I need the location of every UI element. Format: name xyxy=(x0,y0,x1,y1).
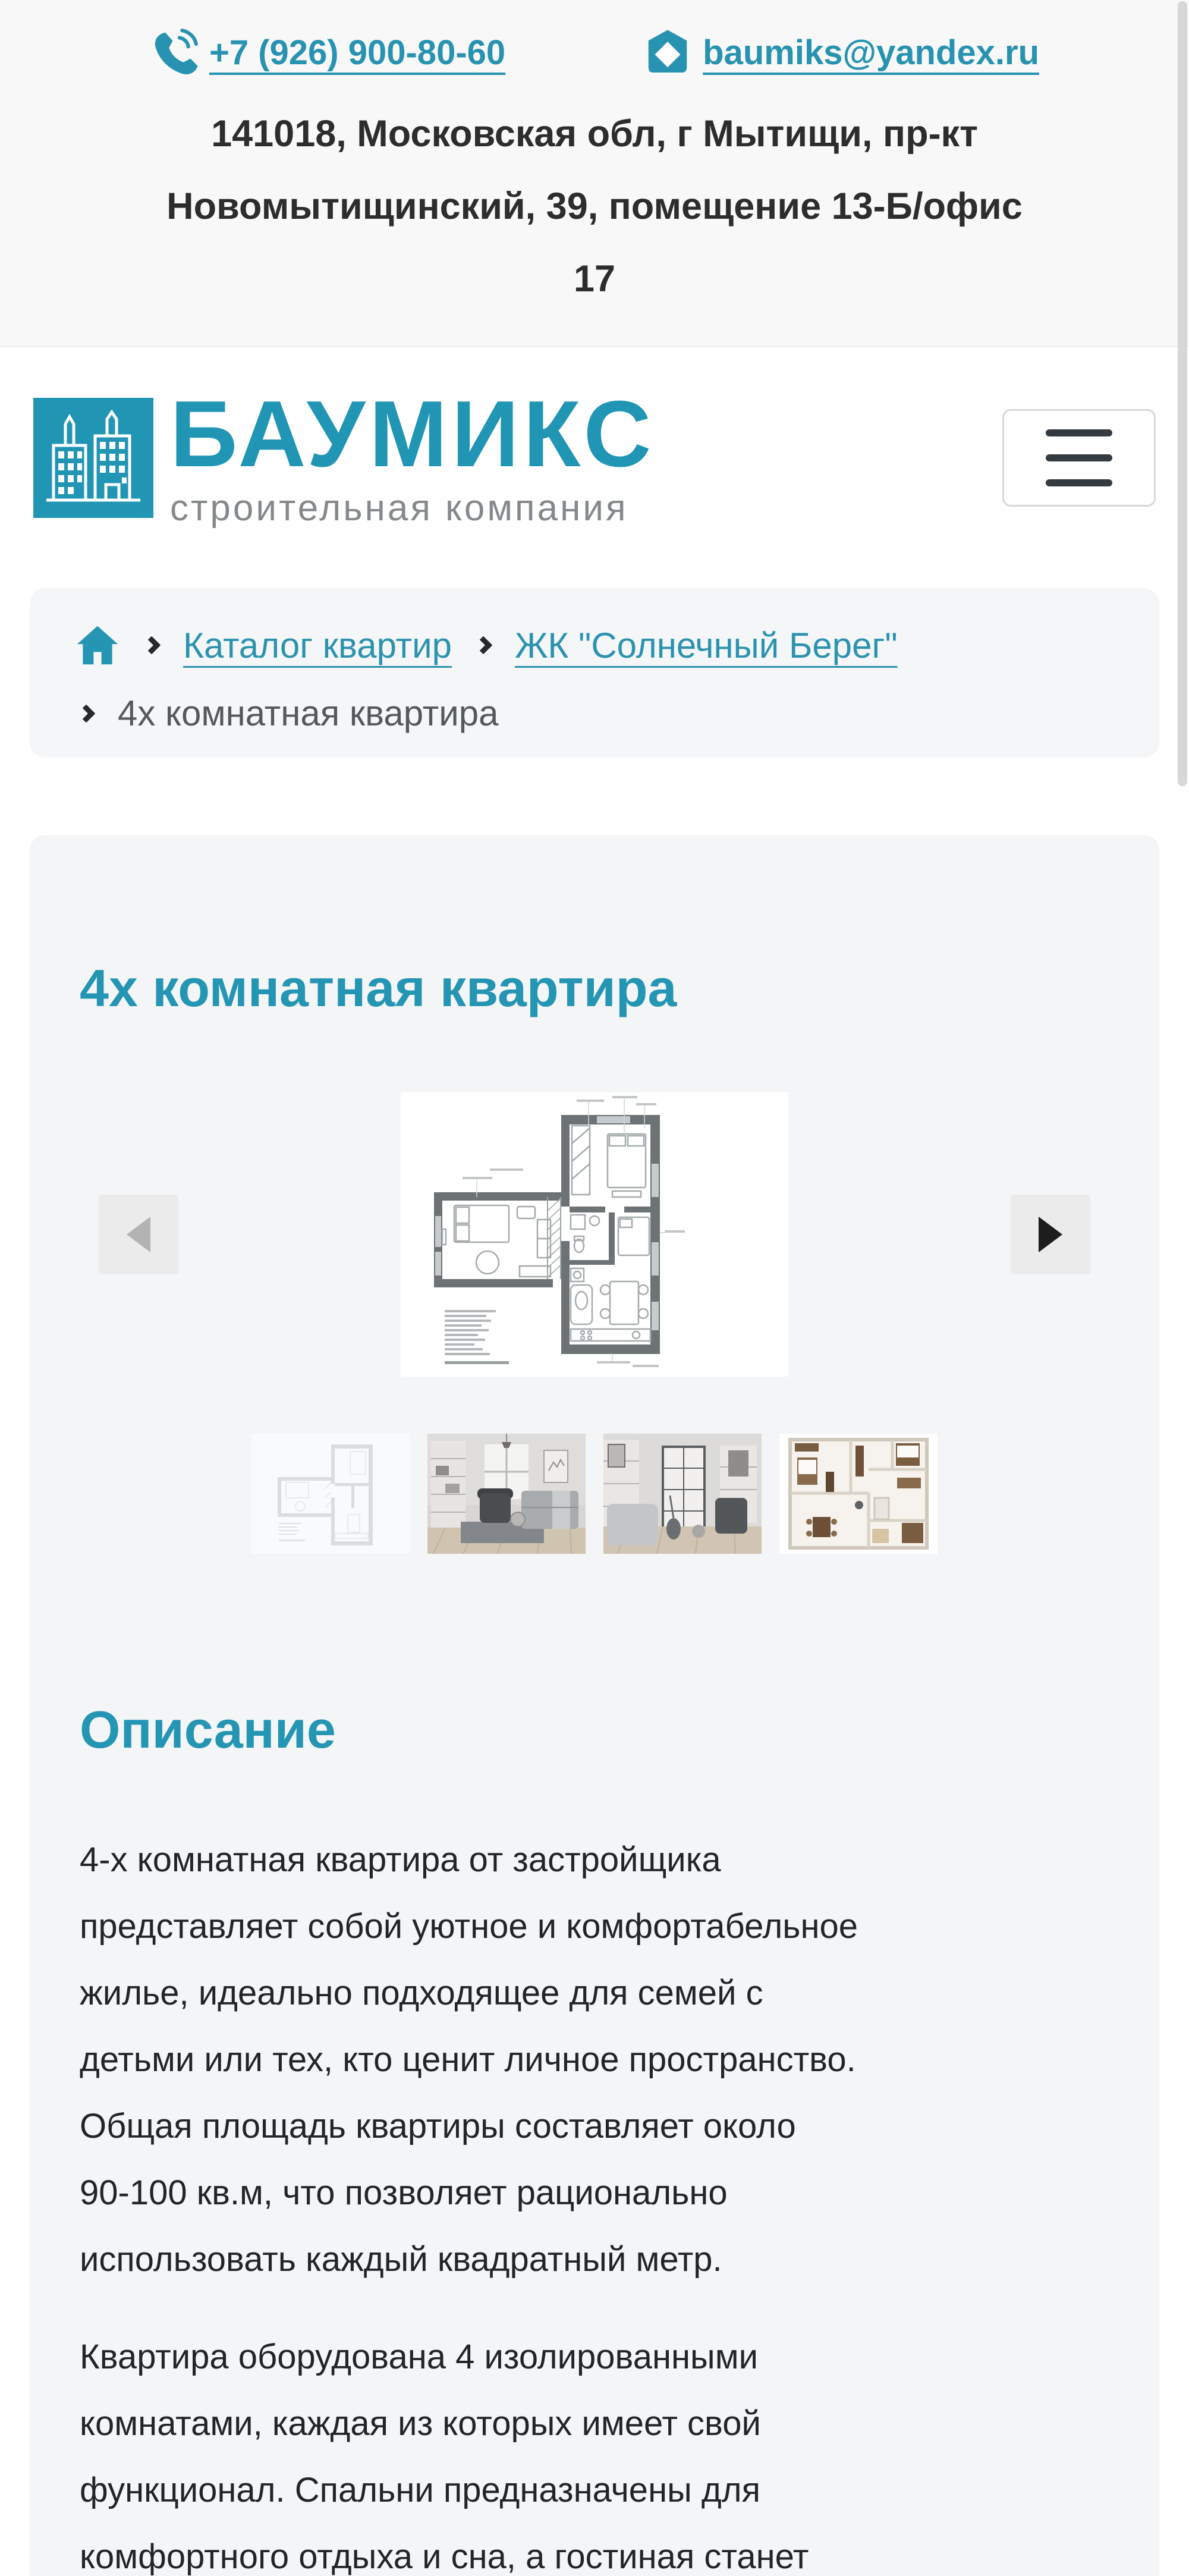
thumbnail-floor-plan-2d[interactable] xyxy=(251,1434,410,1554)
thumbnail-interior-glass-doors[interactable] xyxy=(603,1434,762,1554)
description-paragraph-2: Квартира оборудована 4 изолированными ко… xyxy=(80,2324,1109,2576)
floor-plan-image xyxy=(401,1092,788,1377)
interior-living-room-image xyxy=(427,1434,586,1554)
thumbnail-floor-plan-3d[interactable] xyxy=(779,1434,938,1554)
breadcrumb-row-2: 4х комнатная квартира xyxy=(75,693,1114,734)
email-link[interactable]: baumiks@yandex.ru xyxy=(703,33,1039,73)
breadcrumb-current: 4х комнатная квартира xyxy=(118,693,499,734)
breadcrumb-link-complex[interactable]: ЖК "Солнечный Берег" xyxy=(515,625,898,666)
page-title: 4х комнатная квартира xyxy=(80,960,1109,1017)
breadcrumb-row-1: Каталог квартир ЖК "Солнечный Берег" xyxy=(75,624,1114,667)
carousel-slide-floor-plan xyxy=(401,1092,788,1377)
top-contact-bar: +7 (926) 900-80-60 baumiks@yandex.ru 141… xyxy=(0,0,1189,347)
floor-plan-3d-image xyxy=(779,1434,938,1554)
home-icon[interactable] xyxy=(75,624,120,667)
carousel-next-button[interactable] xyxy=(1011,1195,1090,1274)
hamburger-menu-button[interactable] xyxy=(1002,409,1156,507)
email-icon xyxy=(642,27,693,78)
interior-glass-doors-image xyxy=(603,1434,762,1554)
phone-contact: +7 (926) 900-80-60 xyxy=(150,27,505,77)
chevron-right-icon xyxy=(474,636,492,654)
logo-link[interactable]: БАУМИКС строительная компания xyxy=(33,387,656,529)
email-contact: baumiks@yandex.ru xyxy=(642,27,1039,78)
floor-plan-2d-image xyxy=(251,1434,410,1554)
logo-buildings-icon xyxy=(33,398,153,518)
breadcrumb-link-catalog[interactable]: Каталог квартир xyxy=(183,625,452,666)
thumbnail-interior-living-room[interactable] xyxy=(427,1434,586,1554)
hamburger-bar xyxy=(1046,429,1112,436)
contact-row: +7 (926) 900-80-60 baumiks@yandex.ru xyxy=(0,25,1189,80)
arrow-left-icon xyxy=(127,1217,150,1252)
logo-text: БАУМИКС строительная компания xyxy=(170,387,656,529)
image-carousel xyxy=(80,1092,1109,1377)
description-heading: Описание xyxy=(80,1701,1109,1759)
hamburger-bar xyxy=(1046,454,1112,461)
apartment-card: 4х комнатная квартира xyxy=(30,835,1159,2576)
carousel-prev-button[interactable] xyxy=(99,1195,178,1274)
logo-tagline: строительная компания xyxy=(170,487,656,529)
chevron-right-icon xyxy=(142,636,161,654)
scrollbar-thumb[interactable] xyxy=(1178,1,1187,786)
site-header: БАУМИКС строительная компания xyxy=(0,347,1189,568)
logo-name: БАУМИКС xyxy=(170,387,656,481)
description-paragraph-1: 4-х комнатная квартира от застройщика пр… xyxy=(80,1827,1109,2293)
phone-icon xyxy=(150,27,200,77)
arrow-right-icon xyxy=(1039,1217,1062,1252)
chevron-right-icon xyxy=(77,704,95,722)
company-address: 141018, Московская обл, г Мытищи, пр-кт … xyxy=(0,98,1189,315)
hamburger-bar xyxy=(1046,479,1112,486)
breadcrumb: Каталог квартир ЖК "Солнечный Берег" 4х … xyxy=(30,588,1159,758)
phone-link[interactable]: +7 (926) 900-80-60 xyxy=(209,33,505,73)
thumbnail-strip xyxy=(80,1434,1109,1554)
